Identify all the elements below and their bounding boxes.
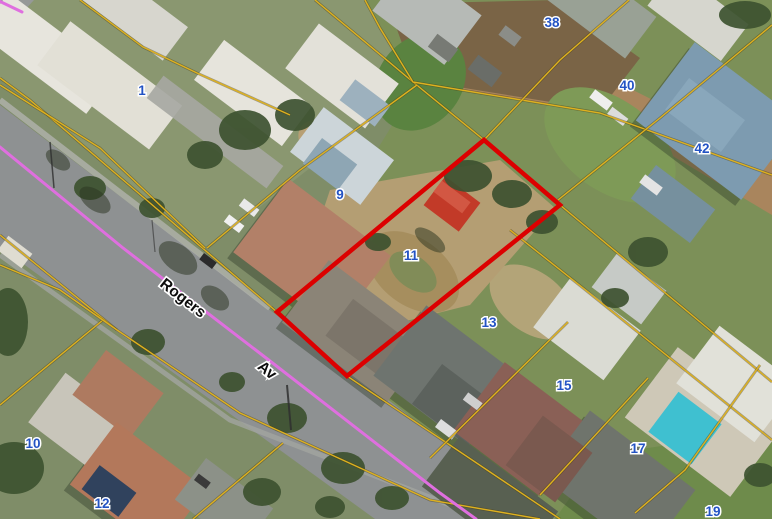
lot-number-label: 11 [404,248,419,263]
lot-number-label: 12 [94,496,109,511]
lot-number-label: 10 [25,436,40,451]
lot-number-label: 1 [138,83,146,98]
lot-number-label: 38 [544,15,560,30]
lot-number-label: 42 [694,141,709,156]
aerial-map-svg: 1910111213151719384042RogersAv [0,0,772,519]
lot-number-label: 9 [336,187,344,202]
lot-number-label: 13 [481,315,497,330]
lot-number-label: 19 [705,504,720,519]
lot-number-label: 15 [556,378,572,393]
aerial-photo-layer [0,0,772,519]
map-canvas[interactable]: 1910111213151719384042RogersAv [0,0,772,519]
lot-number-label: 17 [630,441,645,456]
lot-number-label: 40 [619,78,634,93]
